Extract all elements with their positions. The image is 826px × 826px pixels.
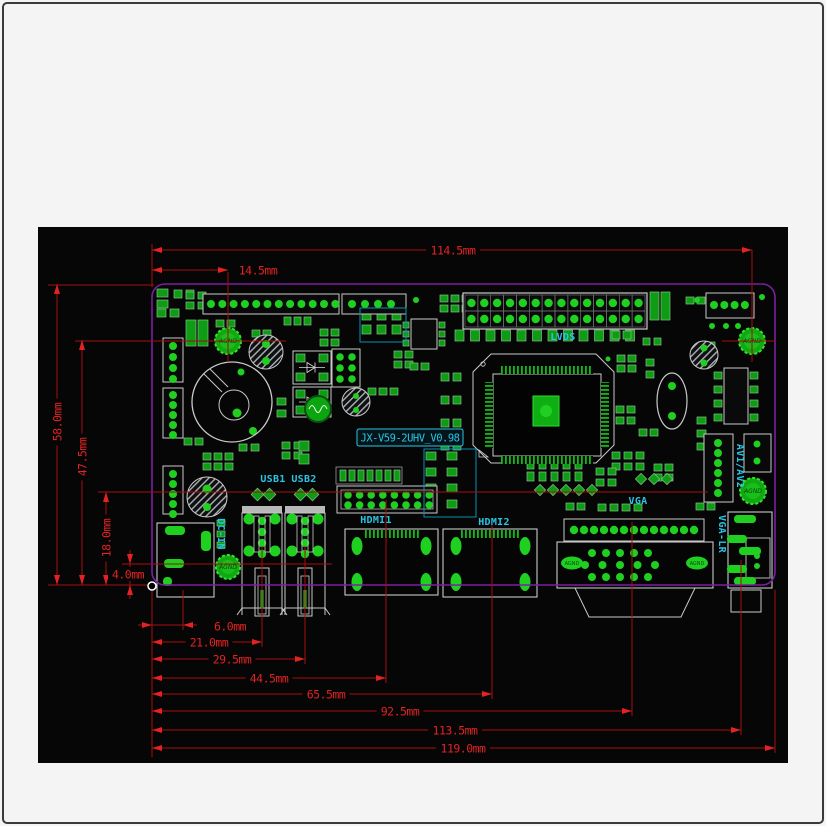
port-label-vga-lr: VGA-LR [716,515,727,554]
hdmi-connector-2 [443,529,537,597]
pin-header-4 [163,388,183,439]
pcb-dimension-drawing-page: JX-V59-2UHV_V0.98AGNDAGNDAGNDAGNDAGNDAGN… [0,0,826,826]
port-label-usb2: USB2 [291,474,316,485]
main-ic-chip [473,354,614,464]
port-label-dc-in: DC-IN [215,518,226,550]
pin-header-2 [706,293,754,318]
dimension-label: 92.5mm [381,705,420,719]
board-title-box: JX-V59-2UHV_V0.98 [357,429,463,446]
small-row-header [336,467,402,484]
pcb-diagram: JX-V59-2UHV_V0.98AGNDAGNDAGNDAGNDAGNDAGN… [0,0,826,826]
dimension-label: 21.0mm [190,636,229,650]
dimension-label: 114.5mm [431,244,477,258]
agnd-hole-label: AGND [743,488,762,495]
port-label-usb1: USB1 [260,474,285,485]
dc-in-jack [157,523,214,597]
dimension-label: 18.0mm [100,518,114,557]
agnd-hole-label: AGND [218,564,237,571]
pin-header-7 [744,434,771,472]
hatched-mount-circle-0 [249,335,283,369]
hdmi1-pin-header [337,486,437,513]
toroid-inductor [305,396,331,422]
agnd-oval-pad-1: AGND [686,557,708,570]
port-label-lvds: LVDS [550,332,575,343]
hatched-mount-circle-1 [187,477,227,517]
dimension-label: 65.5mm [307,688,346,702]
dimension-label: 113.5mm [433,724,479,738]
tall-capacitor [198,320,208,346]
port-label-vga: VGA [629,496,648,507]
dimension-label: 44.5mm [250,672,289,686]
dimension-label: 58.0mm [51,402,65,441]
datum-origin-marker [148,582,156,590]
pin-header-0 [203,294,339,314]
dimension-label: 29.5mm [213,653,252,667]
mounting-hole-agnd-3: AGND [216,555,240,579]
pin-header-6 [704,434,733,502]
dimension-label: 119.0mm [441,742,487,756]
dimension-label: 6.0mm [214,620,247,634]
agnd-pad-label: AGND [565,561,580,567]
dimension-label: 47.5mm [76,437,90,476]
tall-capacitor [650,292,659,320]
dimension-label: 14.5mm [239,264,278,278]
port-label-av1-av2: AV1/AV2 [734,444,745,488]
dimension-label: 4.0mm [112,568,145,582]
pin-header-3 [163,338,183,383]
tall-capacitor [186,320,196,346]
tall-capacitor [661,292,670,320]
hatched-mount-circle-3 [342,388,370,416]
port-label-hdmi1: HDMI1 [360,515,392,526]
hatched-mount-circle-2 [690,341,718,369]
agnd-pad-label: AGND [690,561,705,567]
board-model-text: JX-V59-2UHV_V0.98 [361,433,460,445]
port-label-hdmi2: HDMI2 [478,517,510,528]
agnd-oval-pad-0: AGND [561,557,583,570]
lvds-connector [463,293,647,329]
soic8-ic [403,319,445,349]
pin-header-1 [342,294,406,314]
